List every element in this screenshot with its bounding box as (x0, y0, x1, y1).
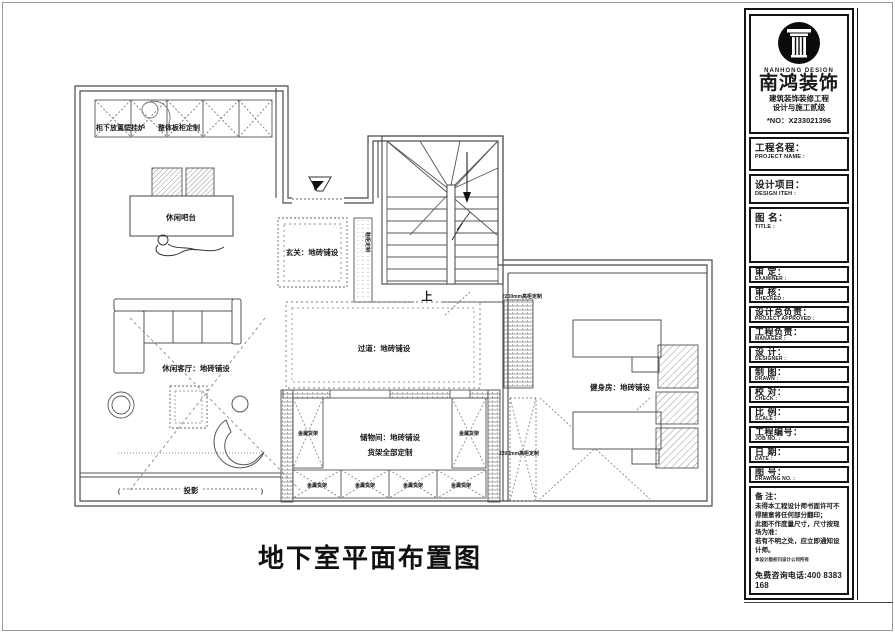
storage-label-2: 货架全部定制 (367, 447, 413, 457)
stair-up-label: 上 (422, 289, 433, 303)
company-logo-icon (776, 20, 822, 66)
field-project-name: 工程名程： PROJECT NAME : (749, 137, 849, 171)
gym-label: 健身房：地砖铺设 (590, 382, 650, 392)
field-scale: 比 例： SCALE : (749, 406, 849, 423)
field-design-item: 设计项目： DESIGN ITEH : (749, 174, 849, 204)
panel-bottom-line (744, 602, 893, 603)
panel-right-border (857, 8, 858, 600)
field-designer: 设 计： DESIGNER : (749, 346, 849, 363)
shelf-label-right: 金属货架 (458, 430, 479, 437)
remarks-block: 备 注： 未得本工程设计师书面许可不得随意将任何部分翻印； 此图不作度量尺寸，尺… (749, 486, 849, 595)
side-table (108, 392, 134, 418)
inner-walls (80, 88, 378, 477)
shoe-cabinet: 鞋柜定制 (354, 218, 372, 302)
projection-label: 投影 (184, 485, 199, 495)
remark-copyright: 本设计版权归设计公司所有 (755, 557, 843, 563)
remark-line-1: 未得本工程设计师书面许可不得随意将任何部分翻印； (755, 503, 843, 521)
gym-equipment (573, 320, 661, 464)
cabinet-note-left: 柜下放置壁挂炉 (95, 123, 145, 132)
shelf-label-b3: 金属货架 (402, 482, 423, 489)
storage-label-1: 储物间：地砖铺设 (360, 432, 420, 442)
bar-label: 休闲吧台 (165, 212, 196, 222)
shelf-label-b1: 金属货架 (306, 482, 327, 489)
person-figure (156, 235, 224, 256)
shelf-label-b2: 金属货架 (354, 482, 375, 489)
logo-chinese-name: 南鸿装饰 (759, 74, 839, 94)
entry-door-opening (292, 194, 344, 205)
logo-subtitle-2: 设计与施工贰级 (773, 103, 826, 112)
field-checked: 审 核： CHECKED : (749, 286, 849, 303)
field-date: 日 期： DATE : (749, 446, 849, 463)
cabinet-note-right: 整体板柜定制 (157, 123, 200, 132)
field-project-approved: 设计总负责： PROJECT APPROVED : (749, 306, 849, 323)
field-drawing-title: 图 名： TITLE : (749, 207, 849, 263)
hotline-phone: 免费咨询电话:400 8383 168 (755, 570, 843, 590)
field-manager: 工程负责： MANAGER : (749, 326, 849, 343)
field-check: 校 对： CHECK : (749, 386, 849, 403)
tall-cabinet-bottom-label: 2200mm高柜定制 (499, 450, 539, 457)
sofa (114, 299, 241, 373)
projection-bracket-right: ) (261, 489, 263, 495)
mirror-panels (656, 345, 698, 468)
remark-line-3: 若有不明之处，应立即通知设计师。 (755, 538, 843, 556)
projection-screen: ( 投影 ) (80, 473, 281, 495)
company-logo-block: NANHONG DESIGN 南鸿装饰 建筑装饰装修工程 设计与施工贰级 *NO… (749, 14, 849, 134)
staircase (382, 136, 503, 284)
title-block: NANHONG DESIGN 南鸿装饰 建筑装饰装修工程 设计与施工贰级 *NO… (744, 8, 854, 600)
bar-table: 休闲吧台 (130, 196, 233, 236)
shoe-cabinet-label: 鞋柜定制 (364, 232, 371, 252)
projection-cone (118, 318, 300, 490)
entry-label: 玄关：地砖铺设 (286, 247, 339, 257)
projection-bracket-left: ( (118, 489, 120, 495)
lounge-chair (214, 396, 264, 468)
field-job-no: 工程编号： JOB NO. : (749, 426, 849, 443)
living-label: 休闲客厅：地砖铺设 (161, 363, 230, 373)
field-drawn: 制 图： DRAWN : (749, 366, 849, 383)
drawing-sheet: 柜下放置壁挂炉 整体板柜定制 休闲吧台 玄关：地砖铺设 (0, 0, 895, 633)
remarks-title: 备 注： (755, 491, 843, 502)
bar-stools (152, 168, 214, 196)
shelf-label-b4: 金属货架 (450, 482, 471, 489)
logo-subtitle-1: 建筑装饰装修工程 (769, 94, 829, 103)
coffee-table (170, 386, 207, 428)
drain-symbol-icon (309, 177, 331, 191)
license-number: *NO：X233021396 (767, 115, 831, 126)
field-drawing-no: 图 号： DRAWING NO. : (749, 466, 849, 483)
shelf-label-left: 金属货架 (297, 430, 318, 437)
field-examiner: 审 定： EXAMINER : (749, 266, 849, 283)
corridor-label: 过道：地砖铺设 (358, 343, 411, 353)
sheet-title: 地下室平面布置图 (235, 538, 505, 575)
remark-line-2: 此图不作度量尺寸，尺寸按现场为准： (755, 521, 843, 539)
